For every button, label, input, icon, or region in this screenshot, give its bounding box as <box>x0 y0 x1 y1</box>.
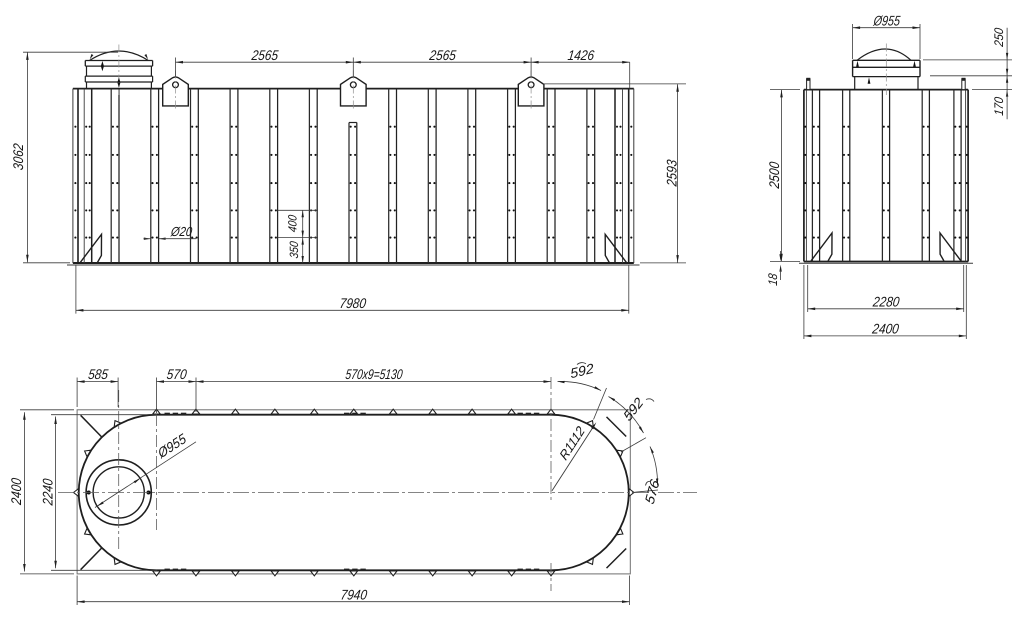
svg-text:585: 585 <box>87 366 109 382</box>
svg-text:7940: 7940 <box>340 586 369 602</box>
svg-text:2565: 2565 <box>250 47 279 63</box>
svg-text:350: 350 <box>287 240 301 259</box>
svg-text:250: 250 <box>992 27 1006 48</box>
svg-text:18: 18 <box>766 273 780 287</box>
svg-text:2500: 2500 <box>766 161 782 190</box>
svg-text:170: 170 <box>992 96 1006 116</box>
svg-text:570x9=5130: 570x9=5130 <box>345 366 404 382</box>
svg-text:Ø20: Ø20 <box>169 224 193 239</box>
svg-text:3062: 3062 <box>10 142 26 171</box>
svg-text:1426: 1426 <box>567 47 596 63</box>
svg-text:570: 570 <box>166 366 188 382</box>
svg-text:2565: 2565 <box>428 47 457 63</box>
svg-text:2280: 2280 <box>871 293 900 309</box>
svg-text:2400: 2400 <box>8 477 24 506</box>
svg-text:2593: 2593 <box>664 158 680 187</box>
svg-text:2400: 2400 <box>871 321 900 337</box>
svg-text:2240: 2240 <box>39 477 55 506</box>
svg-text:400: 400 <box>286 214 300 233</box>
svg-text:7980: 7980 <box>339 295 368 311</box>
svg-text:Ø955: Ø955 <box>872 12 901 28</box>
